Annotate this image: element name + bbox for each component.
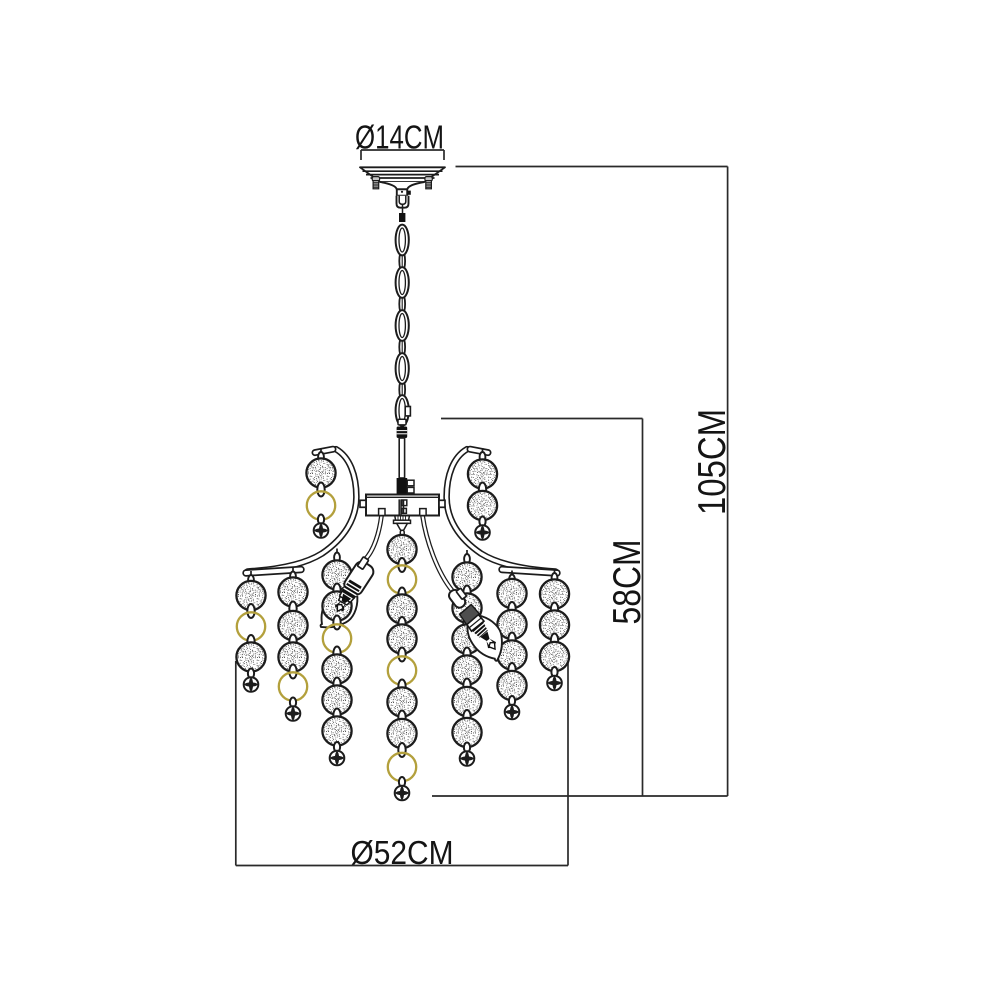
svg-text:Ø14CM: Ø14CM — [355, 120, 444, 157]
svg-text:58CM: 58CM — [606, 540, 649, 625]
svg-text:Ø52CM: Ø52CM — [351, 835, 454, 872]
svg-text:105CM: 105CM — [691, 409, 734, 515]
